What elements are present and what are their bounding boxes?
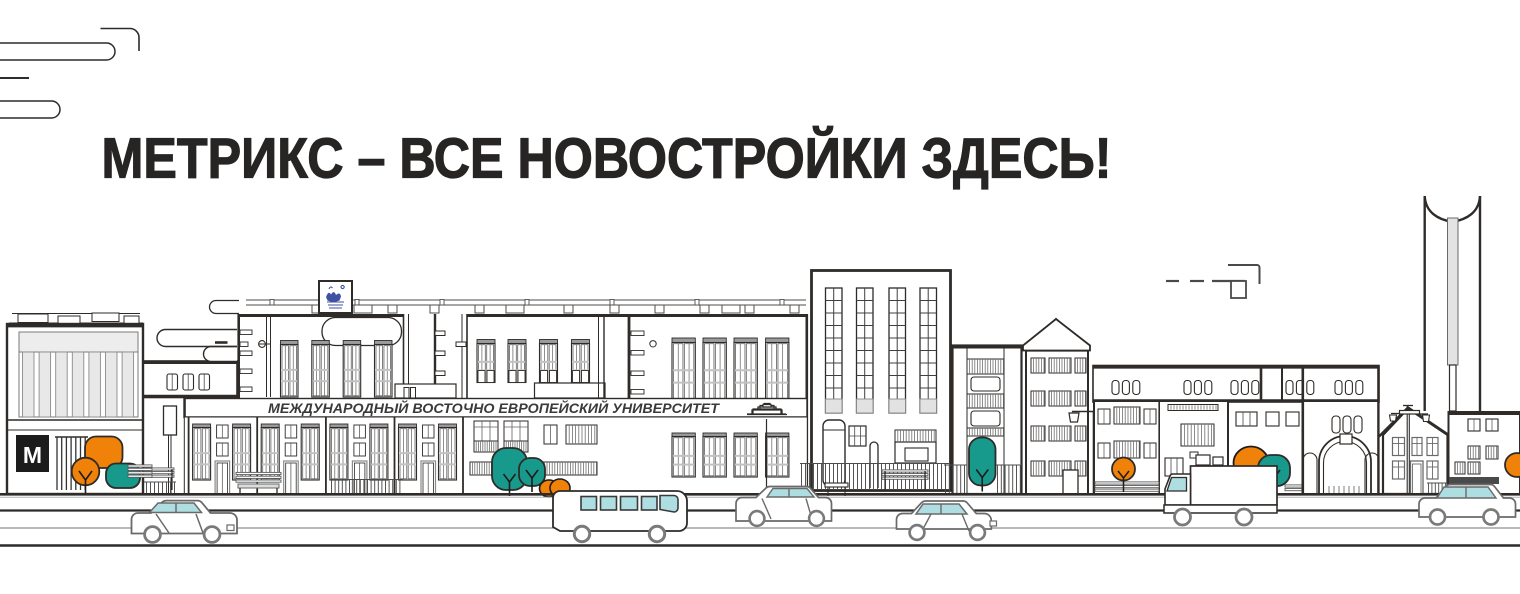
svg-text:МЕТРИКС – ВСЕ НОВОСТРОЙКИ ЗДЕС: МЕТРИКС – ВСЕ НОВОСТРОЙКИ ЗДЕСЬ!: [102, 126, 1112, 190]
svg-text:М: М: [23, 442, 42, 468]
svg-text:МЕЖДУНАРОДНЫЙ ВОСТОЧНО ЕВРОПЕЙ: МЕЖДУНАРОДНЫЙ ВОСТОЧНО ЕВРОПЕЙСКИЙ УНИВЕ…: [268, 399, 720, 417]
